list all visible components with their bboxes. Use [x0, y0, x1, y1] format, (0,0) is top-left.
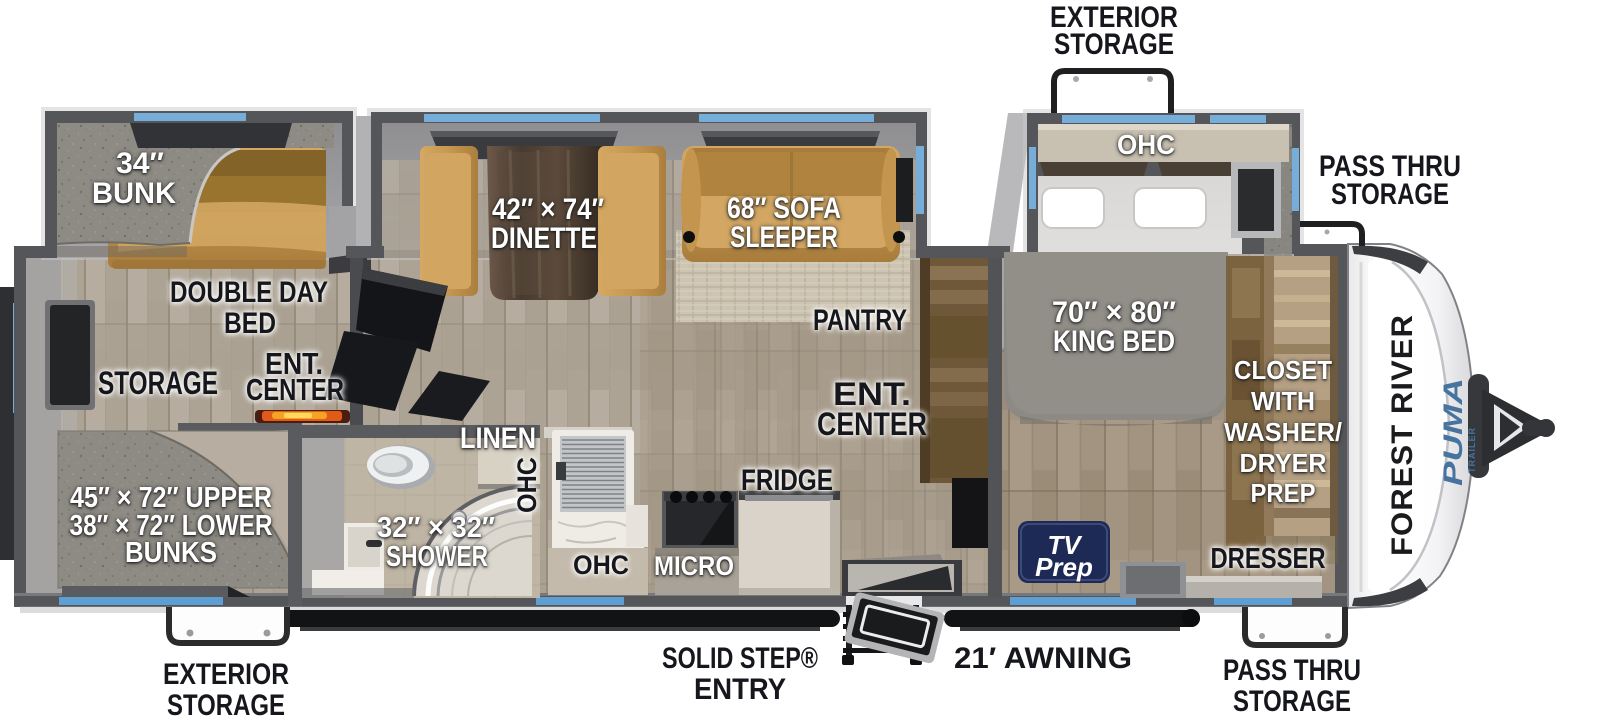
- svg-text:CENTER: CENTER: [817, 406, 927, 442]
- svg-text:TRAILER: TRAILER: [1467, 427, 1477, 473]
- svg-text:PASS THRU: PASS THRU: [1223, 654, 1361, 687]
- svg-text:STORAGE: STORAGE: [1054, 28, 1174, 61]
- svg-text:PANTRY: PANTRY: [813, 304, 907, 337]
- svg-text:KING BED: KING BED: [1053, 325, 1175, 358]
- svg-text:WITH: WITH: [1251, 386, 1315, 416]
- svg-text:DRESSER: DRESSER: [1211, 543, 1326, 575]
- svg-text:32″ × 32″: 32″ × 32″: [377, 512, 495, 544]
- svg-text:CENTER: CENTER: [246, 372, 344, 407]
- svg-text:WASHER/: WASHER/: [1224, 417, 1342, 447]
- svg-text:STORAGE: STORAGE: [1233, 685, 1351, 718]
- svg-text:21′ AWNING: 21′ AWNING: [954, 642, 1132, 675]
- svg-text:OHC: OHC: [1117, 129, 1175, 160]
- svg-text:ENTRY: ENTRY: [694, 673, 786, 706]
- svg-text:OHC: OHC: [512, 457, 542, 513]
- svg-text:LINEN: LINEN: [460, 422, 536, 455]
- svg-text:PUMA: PUMA: [1438, 378, 1468, 486]
- svg-text:BUNKS: BUNKS: [125, 537, 217, 569]
- svg-text:SHOWER: SHOWER: [386, 541, 488, 573]
- svg-text:BED: BED: [224, 307, 276, 340]
- svg-text:FRIDGE: FRIDGE: [741, 464, 833, 497]
- svg-text:DRYER: DRYER: [1240, 448, 1327, 478]
- svg-text:STORAGE: STORAGE: [167, 689, 285, 722]
- svg-text:STORAGE: STORAGE: [1331, 178, 1449, 211]
- svg-text:34″: 34″: [116, 147, 164, 180]
- svg-text:SLEEPER: SLEEPER: [730, 221, 838, 254]
- svg-text:PREP: PREP: [1251, 478, 1316, 508]
- svg-text:FOREST RIVER: FOREST RIVER: [1386, 314, 1419, 556]
- svg-text:DOUBLE DAY: DOUBLE DAY: [170, 276, 328, 309]
- svg-text:MICRO: MICRO: [654, 551, 734, 581]
- svg-text:EXTERIOR: EXTERIOR: [163, 658, 289, 691]
- svg-text:OHC: OHC: [573, 550, 629, 580]
- svg-text:DINETTE: DINETTE: [491, 222, 597, 255]
- svg-text:BUNK: BUNK: [92, 177, 176, 210]
- svg-text:CLOSET: CLOSET: [1234, 355, 1332, 385]
- svg-text:Prep: Prep: [1035, 552, 1093, 582]
- svg-text:SOLID STEP®: SOLID STEP®: [662, 642, 818, 675]
- svg-text:STORAGE: STORAGE: [98, 365, 218, 401]
